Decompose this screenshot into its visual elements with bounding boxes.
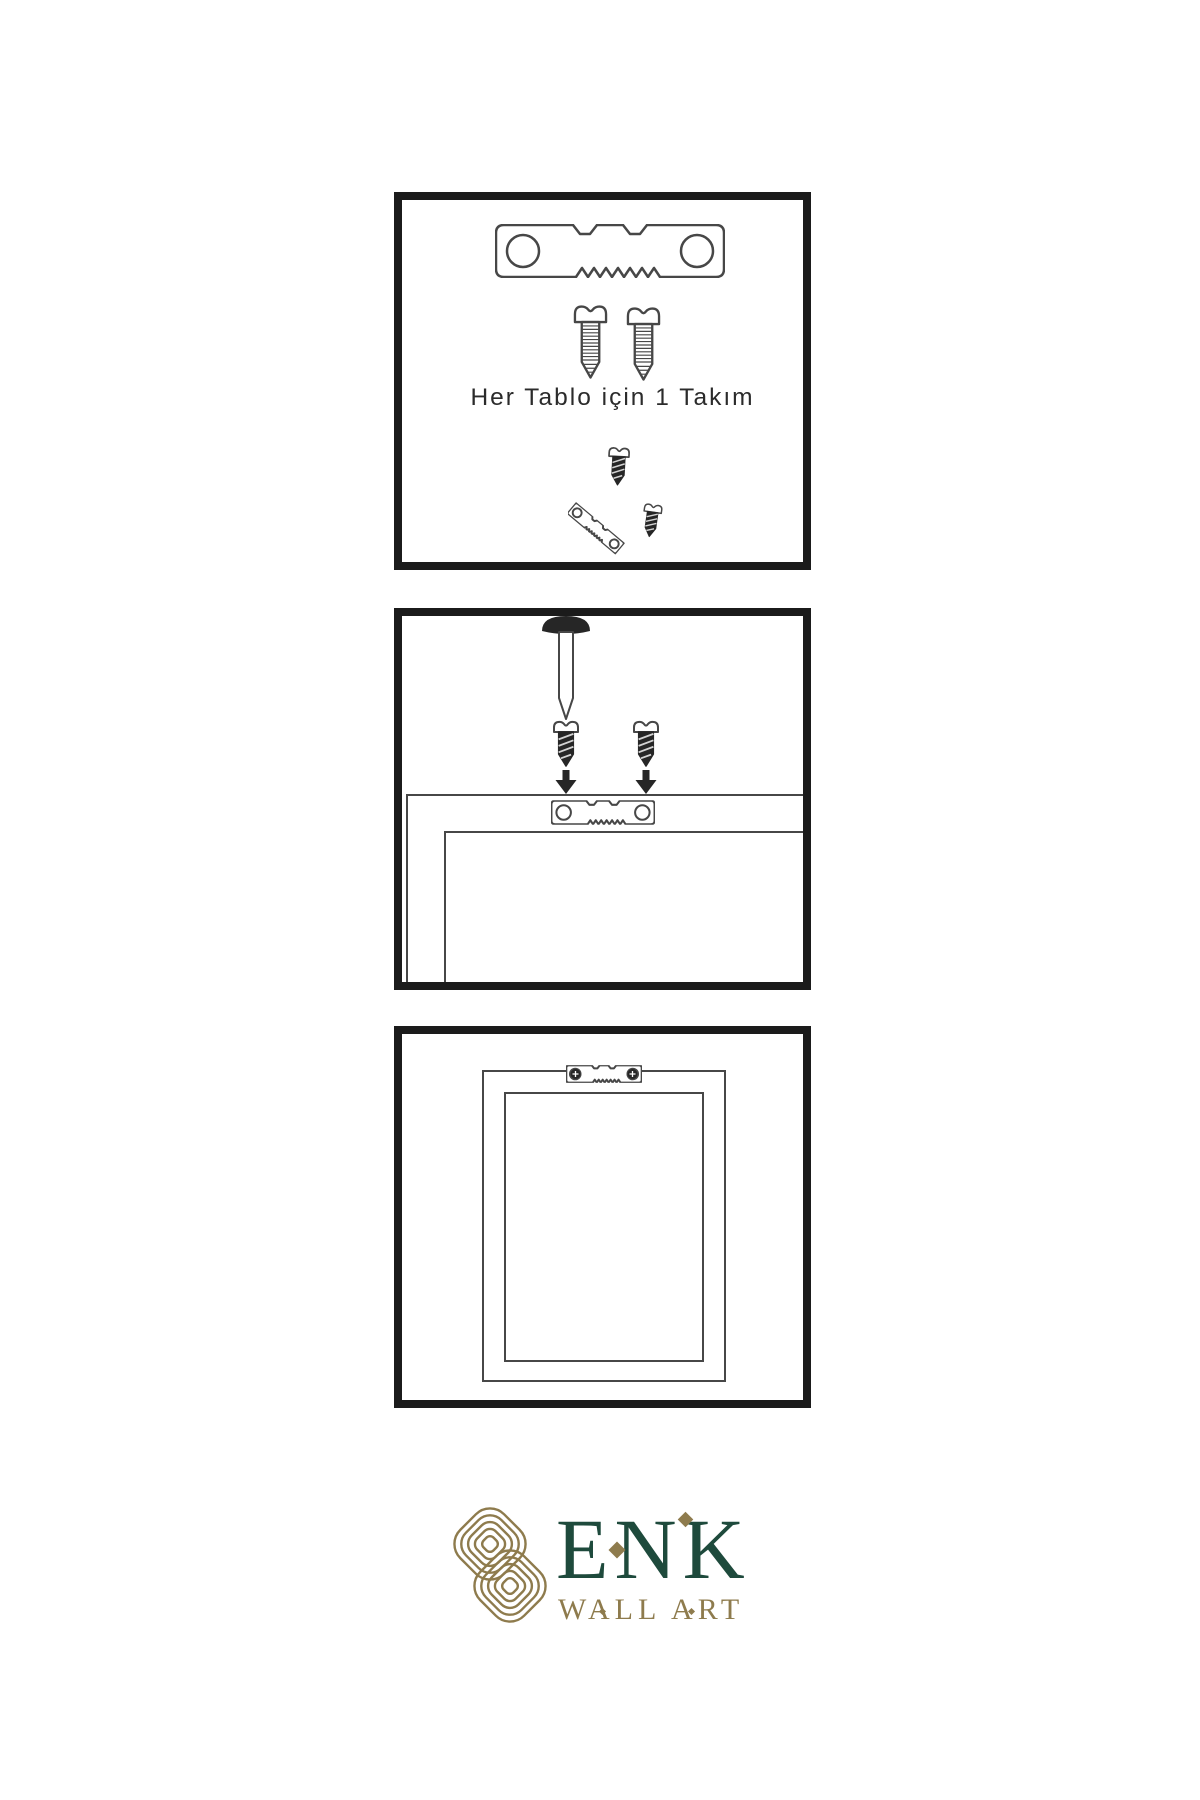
step-3-panel — [394, 1026, 811, 1408]
screw-icon — [552, 720, 580, 768]
step-1-panel: Her Tablo için 1 Takım — [394, 192, 811, 570]
down-arrow-icon — [555, 770, 577, 794]
sawtooth-hanger-icon — [495, 224, 725, 278]
screw-head-icon — [571, 1069, 581, 1079]
sawtooth-hanger-icon — [551, 800, 655, 825]
frame-inner-edge — [444, 831, 811, 990]
celtic-knot-icon — [440, 1500, 560, 1630]
brand-subtitle: WALL ART — [556, 1593, 751, 1627]
instruction-sheet: Her Tablo için 1 Takım — [0, 0, 1200, 1800]
brand-name: ENK — [556, 1506, 751, 1592]
screw-into-hanger-icon — [568, 446, 680, 558]
instruction-caption: Her Tablo için 1 Takım — [412, 384, 811, 412]
screw-heads — [566, 1065, 642, 1083]
screw-icon — [632, 720, 660, 768]
down-arrow-icon — [635, 770, 657, 794]
wall-nail-icon — [541, 616, 591, 722]
frame-inner-edge — [504, 1092, 704, 1362]
step-2-panel — [394, 608, 811, 990]
screw-icon — [573, 304, 608, 381]
screw-icon — [626, 306, 661, 383]
screw-head-icon — [628, 1069, 638, 1079]
